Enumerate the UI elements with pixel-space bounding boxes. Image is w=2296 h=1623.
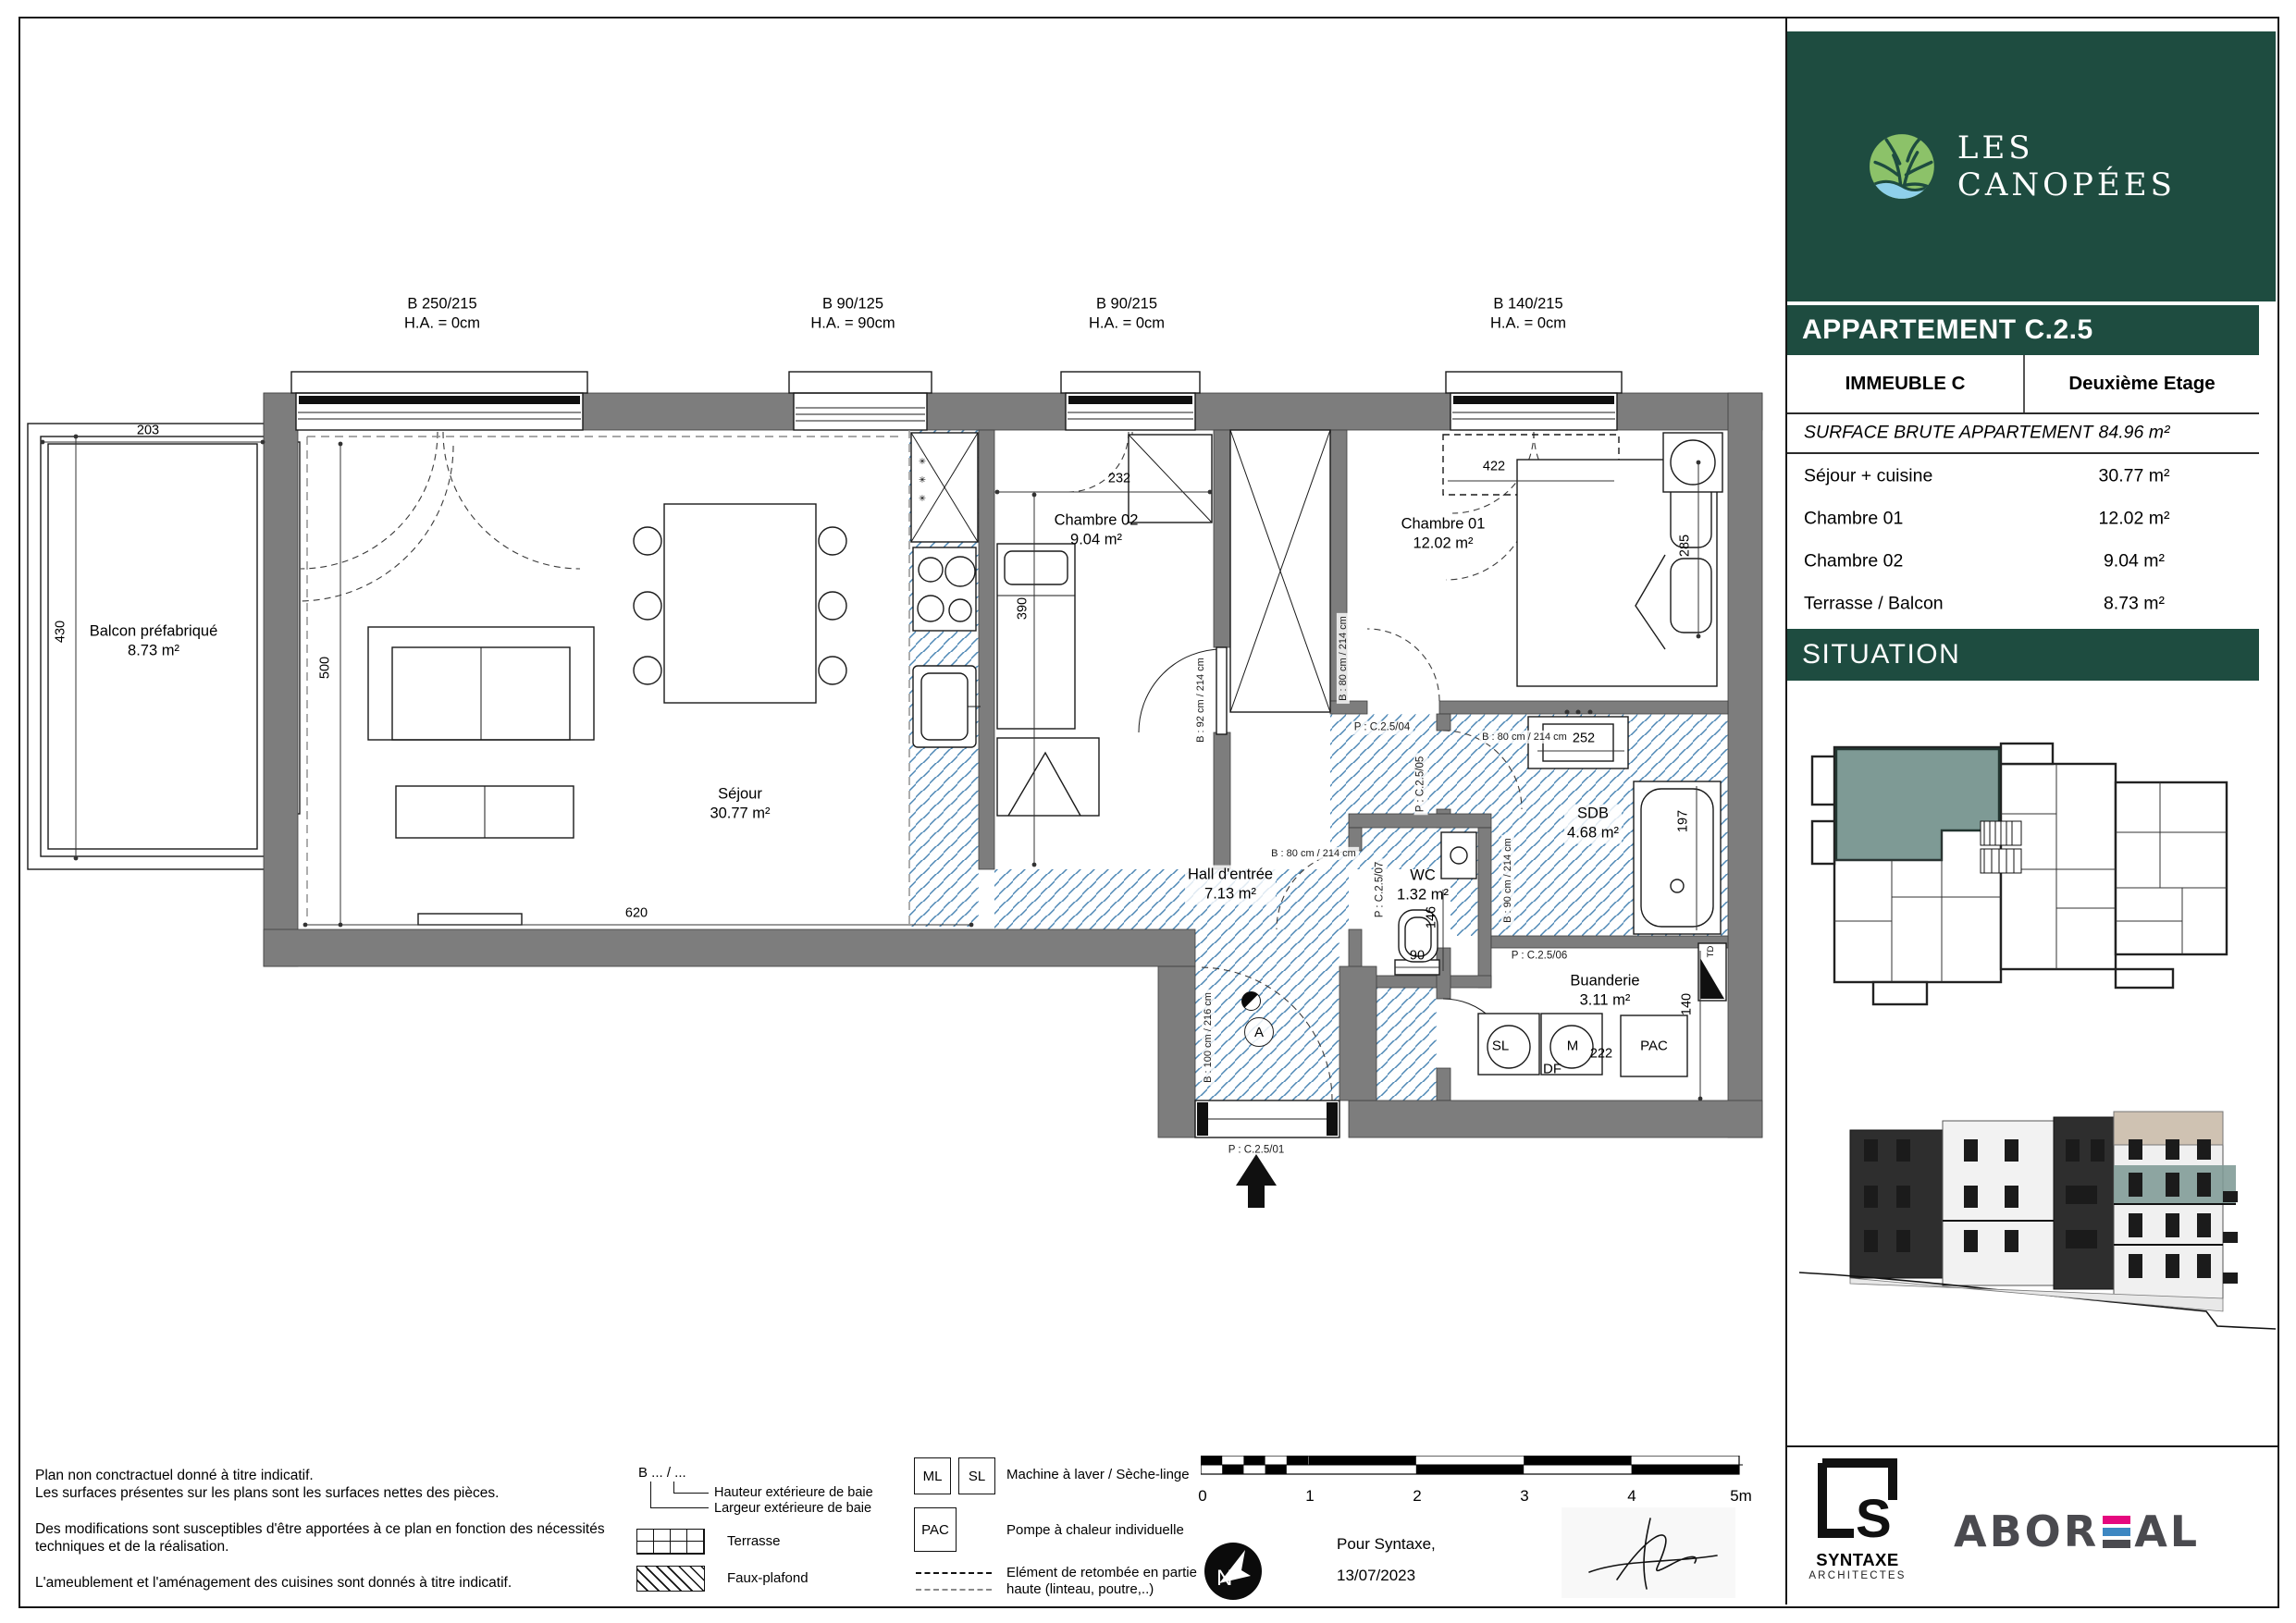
surface-row-sejour: Séjour + cuisine 30.77 m² (1787, 455, 2259, 497)
room-wc-name: WC (1397, 867, 1449, 886)
scale-tick-0: 0 (1198, 1486, 1206, 1506)
room-label-chambre01: Chambre 01 12.02 m² (1401, 515, 1486, 555)
situation-title-bar: SITUATION (1787, 629, 2259, 681)
syntaxe-name: SYNTAXE (1804, 1550, 1911, 1570)
room-sejour-name: Séjour (710, 785, 770, 805)
door-label-p07: P : C.2.5/07 (1374, 859, 1388, 921)
disclaimer-line-2: Les surfaces présentes sur les plans son… (35, 1484, 609, 1502)
annotation-a-letter: A (1254, 1025, 1264, 1040)
disclaimer-block: Plan non conctractuel donné à titre indi… (35, 1467, 609, 1592)
disclaimer-line-3: Des modifications sont susceptibles d'êt… (35, 1520, 609, 1556)
scale-tick-2: 2 (1413, 1486, 1421, 1506)
dim-203: 203 (137, 423, 159, 440)
bay-label-entry: B : 100 cm / 216 cm (1202, 990, 1215, 1086)
surface-row-sejour-value: 30.77 m² (2065, 465, 2203, 486)
north-arrow: N (1203, 1541, 1264, 1602)
scale-tick-1: 1 (1305, 1486, 1314, 1506)
bay-label-sdb: B : 80 cm / 214 cm (1479, 731, 1570, 744)
brand-title: LES CANOPÉES (1957, 129, 2196, 203)
floor-cell: Deuxième Etage (2025, 355, 2259, 412)
legend-pac-text: PAC (921, 1522, 949, 1538)
door-label-p06: P : C.2.5/06 (1512, 950, 1568, 964)
legend-retombee-dash-black (916, 1572, 992, 1574)
footer-divider-line (1785, 1445, 2277, 1447)
brand-header: LES CANOPÉES (1787, 31, 2276, 301)
window-label-3-code: B 90/215 (1089, 295, 1165, 314)
dim-620: 620 (625, 905, 648, 923)
room-label-wc: WC 1.32 m² (1397, 867, 1449, 906)
window-label-1: B 250/215 H.A. = 0cm (404, 295, 480, 335)
surface-row-chambre01-label: Chambre 01 (1804, 508, 1903, 529)
equip-df-label: DF (1543, 1060, 1562, 1078)
legend-terrasse-swatch (636, 1529, 705, 1555)
room-chambre01-area: 12.02 m² (1401, 535, 1486, 554)
sidebar-divider-line (1785, 17, 1787, 1605)
room-sejour-area: 30.77 m² (710, 805, 770, 824)
room-chambre01-name: Chambre 01 (1401, 515, 1486, 535)
signature (1562, 1507, 1735, 1598)
window-label-1-code: B 250/215 (404, 295, 480, 314)
door-label-p01: P : C.2.5/01 (1228, 1144, 1285, 1158)
legend-ml-box: ML (914, 1457, 951, 1494)
plan-date: 13/07/2023 (1337, 1567, 1415, 1585)
equip-ml-label: M (1567, 1037, 1579, 1055)
room-buanderie-area: 3.11 m² (1570, 991, 1639, 1011)
window-label-2: B 90/125 H.A. = 90cm (810, 295, 895, 335)
room-chambre02-name: Chambre 02 (1055, 511, 1139, 531)
room-chambre02-area: 9.04 m² (1055, 531, 1139, 550)
syntaxe-logo-s: S (1856, 1489, 1892, 1543)
situation-title: SITUATION (1802, 629, 1960, 681)
room-balcon-name: Balcon préfabriqué (90, 622, 218, 642)
legend-sl-box: SL (958, 1457, 995, 1494)
surface-row-sejour-label: Séjour + cuisine (1804, 465, 1932, 486)
gross-surface-row: SURFACE BRUTE APPARTEMENT 84.96 m² (1787, 412, 2259, 454)
situation-key-plan (1799, 703, 2262, 1073)
room-label-sejour: Séjour 30.77 m² (710, 785, 770, 825)
bay-label-wc: B : 80 cm / 214 cm (1268, 847, 1359, 860)
room-buanderie-name: Buanderie (1570, 972, 1639, 991)
bay-label-chambre01: B : 80 cm / 214 cm (1337, 613, 1350, 704)
scale-bar (1201, 1456, 1743, 1476)
surface-row-chambre02-value: 9.04 m² (2065, 550, 2203, 572)
room-wc-area: 1.32 m² (1397, 886, 1449, 905)
window-label-1-ha: H.A. = 0cm (404, 314, 480, 334)
legend-bay-code: B ... / ... (638, 1465, 686, 1481)
dim-390: 390 (1015, 597, 1032, 620)
legend-pac-label: Pompe à chaleur individuelle (1006, 1522, 1184, 1538)
surface-row-terrasse-value: 8.73 m² (2065, 593, 2203, 614)
building-floor-row: IMMEUBLE C Deuxième Etage (1787, 355, 2259, 414)
scale-tick-4: 4 (1627, 1486, 1636, 1506)
equip-pac-label: PAC (1640, 1037, 1668, 1055)
surface-row-terrasse-label: Terrasse / Balcon (1804, 593, 1944, 614)
dim-140: 140 (1679, 993, 1697, 1015)
les-canopees-logo-icon (1867, 121, 1937, 212)
equip-td-label: TD (1706, 946, 1717, 958)
scale-tick-3: 3 (1520, 1486, 1528, 1506)
aboreal-text-left: ABOR (1954, 1506, 2099, 1556)
dim-500: 500 (317, 657, 335, 679)
window-label-2-code: B 90/125 (810, 295, 895, 314)
north-letter: N (1216, 1566, 1232, 1591)
room-label-chambre02: Chambre 02 9.04 m² (1055, 511, 1139, 551)
disclaimer-line-1: Plan non conctractuel donné à titre indi… (35, 1467, 609, 1484)
door-label-p04: P : C.2.5/04 (1352, 721, 1413, 735)
plan-sheet: { "colors":{ "dark_green":"#1e4c40","tea… (0, 0, 2296, 1623)
legend-largeur-label: Largeur extérieure de baie (714, 1501, 871, 1516)
dim-232: 232 (1108, 471, 1130, 488)
room-hall-name: Hall d'entrée (1188, 866, 1273, 885)
window-label-3: B 90/215 H.A. = 0cm (1089, 295, 1165, 335)
window-label-4-code: B 140/215 (1490, 295, 1566, 314)
aboreal-e-bars (2103, 1516, 2130, 1548)
building-cell: IMMEUBLE C (1787, 355, 2023, 412)
apartment-title-bar: APPARTEMENT C.2.5 (1787, 305, 2259, 355)
legend-bracket-hauteur (673, 1482, 709, 1494)
fridge-star-1: ✳ (919, 457, 926, 468)
window-label-2-ha: H.A. = 90cm (810, 314, 895, 334)
window-label-4: B 140/215 H.A. = 0cm (1490, 295, 1566, 335)
window-label-4-ha: H.A. = 0cm (1490, 314, 1566, 334)
bay-label-sdb2: B : 90 cm / 214 cm (1501, 835, 1514, 926)
room-label-buanderie: Buanderie 3.11 m² (1570, 972, 1639, 1012)
legend-terrasse-label: Terrasse (727, 1533, 781, 1549)
gross-surface-value: 84.96 m² (2065, 422, 2203, 443)
equip-sl-label: SL (1492, 1037, 1509, 1055)
dim-252: 252 (1570, 731, 1598, 748)
legend-faux-plafond-swatch (636, 1566, 705, 1592)
dim-222: 222 (1590, 1046, 1612, 1064)
legend-retombee-line2: haute (linteau, poutre,..) (1006, 1581, 1154, 1597)
surface-row-chambre02: Chambre 02 9.04 m² (1787, 540, 2259, 582)
room-hall-area: 7.13 m² (1188, 885, 1273, 904)
dim-146: 146 (1424, 906, 1441, 928)
surface-row-terrasse: Terrasse / Balcon 8.73 m² (1787, 583, 2259, 624)
room-label-hall: Hall d'entrée 7.13 m² (1185, 866, 1276, 905)
room-label-sdb: SDB 4.68 m² (1564, 805, 1622, 844)
dim-90: 90 (1410, 948, 1425, 965)
apartment-title: APPARTEMENT C.2.5 (1802, 305, 2093, 355)
dim-285: 285 (1677, 535, 1695, 557)
disclaimer-line-4: L'ameublement et l'aménagement des cuisi… (35, 1574, 609, 1592)
room-label-balcon: Balcon préfabriqué 8.73 m² (90, 622, 218, 662)
annotation-a-marker: A (1244, 1017, 1274, 1047)
legend-ml-text: ML (923, 1469, 943, 1484)
gross-surface-label: SURFACE BRUTE APPARTEMENT (1804, 422, 2092, 443)
room-balcon-area: 8.73 m² (90, 642, 218, 661)
legend-retombee-dash-gray (916, 1589, 992, 1591)
for-syntaxe-text: Pour Syntaxe, (1337, 1535, 1436, 1554)
ceiling-light-marker (1241, 991, 1261, 1011)
legend-pac-box: PAC (914, 1507, 957, 1552)
dim-197: 197 (1675, 807, 1693, 835)
door-label-p05: P : C.2.5/05 (1414, 754, 1428, 816)
legend-faux-plafond-label: Faux-plafond (727, 1570, 809, 1586)
window-label-3-ha: H.A. = 0cm (1089, 314, 1165, 334)
room-sdb-name: SDB (1567, 805, 1619, 824)
dim-422: 422 (1483, 459, 1505, 476)
scale-tick-5m: 5m (1730, 1486, 1752, 1506)
surface-row-chambre01: Chambre 01 12.02 m² (1787, 498, 2259, 539)
legend-sl-text: SL (969, 1469, 985, 1484)
room-sdb-area: 4.68 m² (1567, 824, 1619, 843)
aboreal-text-right: AL (2134, 1506, 2200, 1556)
dim-430: 430 (53, 621, 70, 643)
legend-ml-sl-label: Machine à laver / Sèche-linge (1006, 1467, 1190, 1482)
syntaxe-logo: S (1811, 1454, 1904, 1543)
building-elevation (1799, 1091, 2276, 1378)
aboreal-logo: ABOR AL (1954, 1507, 2200, 1555)
fridge-star-2: ✳ (919, 475, 926, 486)
syntaxe-subtitle: ARCHITECTES (1804, 1570, 1911, 1581)
legend-hauteur-label: Hauteur extérieure de baie (714, 1485, 873, 1500)
legend-retombee-line1: Elément de retombée en partie (1006, 1565, 1197, 1580)
bay-label-chambre02: B : 92 cm / 214 cm (1194, 658, 1207, 743)
fridge-star-3: ✳ (919, 494, 926, 505)
surface-row-chambre01-value: 12.02 m² (2065, 508, 2203, 529)
surface-row-chambre02-label: Chambre 02 (1804, 550, 1903, 572)
